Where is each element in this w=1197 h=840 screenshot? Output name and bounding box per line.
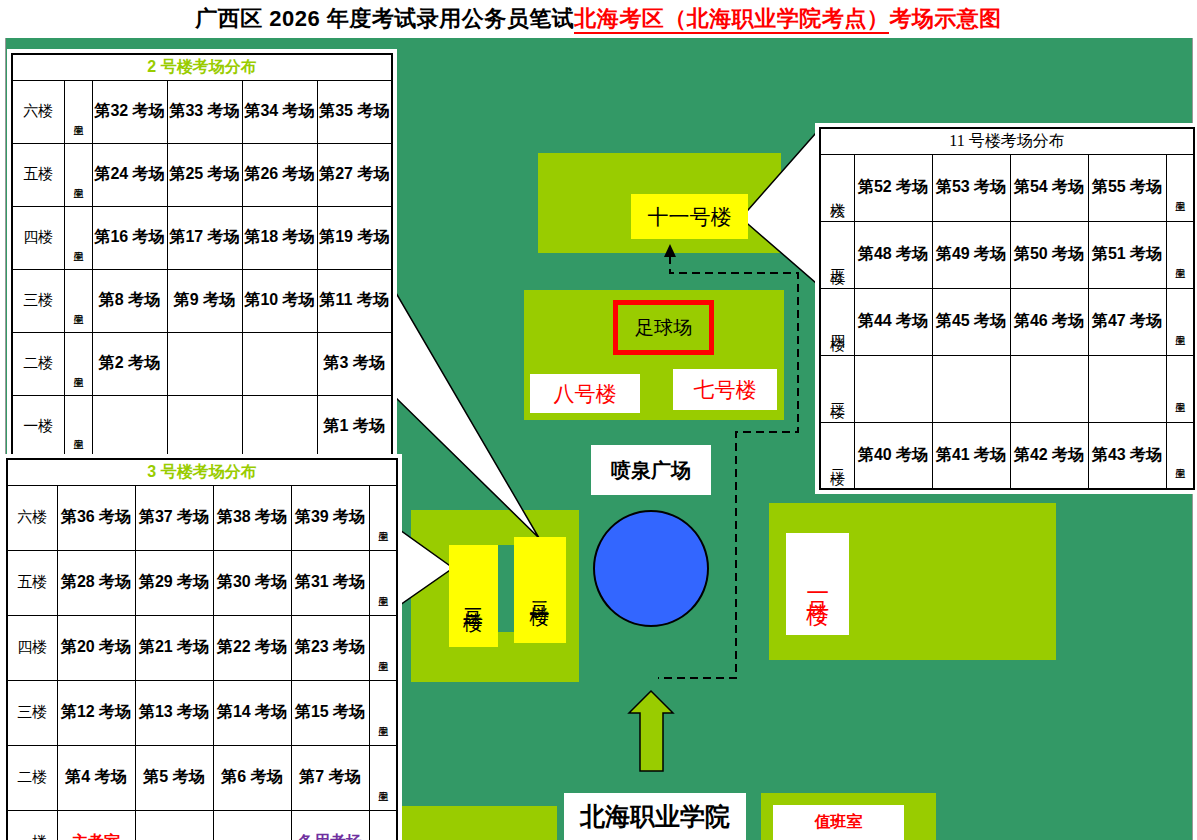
toilet-label: 卫生间 <box>369 680 397 745</box>
floor-label: 二楼 <box>820 422 854 489</box>
room-cell: 第55 考场 <box>1088 154 1166 221</box>
duty-room-label: 值班室 <box>773 805 904 840</box>
room-cell: 第44 考场 <box>854 288 932 355</box>
room-cell: 第6 考场 <box>213 745 291 810</box>
room-cell: 第8 考场 <box>92 269 167 332</box>
room-cell <box>92 395 167 458</box>
room-cell <box>854 355 932 422</box>
room-cell: 第20 考场 <box>57 615 135 680</box>
room-cell: 第21 考场 <box>135 615 213 680</box>
college-name-label: 北海职业学院 <box>564 793 746 840</box>
room-cell <box>1010 355 1088 422</box>
table-row: 四楼第20 考场第21 考场第22 考场第23 考场卫生间 <box>7 615 397 680</box>
toilet-label: 卫生间 <box>369 745 397 810</box>
room-cell: 第48 考场 <box>854 221 932 288</box>
floor-label: 四楼 <box>12 206 64 269</box>
toilet-label: 卫生间 <box>1166 288 1194 355</box>
room-cell: 第22 考场 <box>213 615 291 680</box>
room-cell: 第52 考场 <box>854 154 932 221</box>
table-title: 3 号楼考场分布 <box>7 459 397 485</box>
room-cell: 第3 考场 <box>317 332 392 395</box>
room-cell <box>167 395 242 458</box>
floor-label: 一楼 <box>7 810 57 840</box>
floor-label: 六楼 <box>820 154 854 221</box>
floor-label: 五楼 <box>12 143 64 206</box>
room-cell: 第31 考场 <box>291 550 369 615</box>
floor-label: 三楼 <box>12 269 64 332</box>
entrance-arrow <box>629 691 673 771</box>
room-cell: 第16 考场 <box>92 206 167 269</box>
toilet-label: 卫生间 <box>64 143 92 206</box>
room-cell: 第14 考场 <box>213 680 291 745</box>
floor-label: 一楼 <box>12 395 64 458</box>
room-cell: 第4 考场 <box>57 745 135 810</box>
table-row: 五楼第48 考场第49 考场第50 考场第51 考场卫生间 <box>820 221 1194 288</box>
room-cell: 第13 考场 <box>135 680 213 745</box>
floor-label: 六楼 <box>12 80 64 143</box>
toilet-label: 卫生间 <box>369 550 397 615</box>
room-cell: 第36 考场 <box>57 485 135 550</box>
toilet-label: 卫生间 <box>1166 422 1194 489</box>
room-cell: 第32 考场 <box>92 80 167 143</box>
room-cell: 第54 考场 <box>1010 154 1088 221</box>
room-cell: 第2 考场 <box>92 332 167 395</box>
floor-label: 五楼 <box>820 221 854 288</box>
room-cell: 第50 考场 <box>1010 221 1088 288</box>
toilet-label: 卫生间 <box>1166 154 1194 221</box>
room-cell: 第10 考场 <box>242 269 317 332</box>
room-cell: 第43 考场 <box>1088 422 1166 489</box>
room-cell: 第39 考场 <box>291 485 369 550</box>
room-cell: 第19 考场 <box>317 206 392 269</box>
toilet-label: 卫生间 <box>64 332 92 395</box>
table-row: 三楼卫生间 <box>820 355 1194 422</box>
room-cell: 第47 考场 <box>1088 288 1166 355</box>
toilet-label: 卫生间 <box>1166 355 1194 422</box>
room-cell: 主考室 <box>57 810 135 840</box>
title-exam-area-part: 北海考区（北海职业学院考点） <box>574 6 889 34</box>
table-row: 二楼卫生间第2 考场第3 考场 <box>12 332 392 395</box>
table-row: 六楼卫生间第32 考场第33 考场第34 考场第35 考场 <box>12 80 392 143</box>
room-cell: 第23 考场 <box>291 615 369 680</box>
table-row: 一楼主考室备用考场卫生间 <box>7 810 397 840</box>
building2-label: 二号楼 <box>514 537 566 643</box>
building8-label: 八号楼 <box>530 374 640 413</box>
room-cell: 第1 考场 <box>317 395 392 458</box>
title-black-part: 广西区 2026 年度考试录用公务员笔试 <box>195 6 574 31</box>
room-cell <box>932 355 1010 422</box>
room-cell: 第9 考场 <box>167 269 242 332</box>
room-cell: 第40 考场 <box>854 422 932 489</box>
campus-map: 十一号楼 足球场 八号楼 七号楼 喷泉广场 三号楼 二号楼 一号楼 北海职业学院… <box>5 38 1193 840</box>
building3-label: 三号楼 <box>449 545 498 647</box>
room-cell: 第33 考场 <box>167 80 242 143</box>
toilet-label: 卫生间 <box>64 395 92 458</box>
room-cell: 第41 考场 <box>932 422 1010 489</box>
building3-room-table: 3 号楼考场分布六楼第36 考场第37 考场第38 考场第39 考场卫生间五楼第… <box>6 458 398 840</box>
room-cell <box>242 332 317 395</box>
table-row: 二楼第4 考场第5 考场第6 考场第7 考场卫生间 <box>7 745 397 810</box>
floor-label: 二楼 <box>12 332 64 395</box>
room-cell <box>213 810 291 840</box>
room-cell: 第11 考场 <box>317 269 392 332</box>
building11-label: 十一号楼 <box>631 194 748 239</box>
room-cell: 第7 考场 <box>291 745 369 810</box>
room-cell <box>1088 355 1166 422</box>
floor-label: 五楼 <box>7 550 57 615</box>
room-cell <box>242 395 317 458</box>
table-row: 三楼第12 考场第13 考场第14 考场第15 考场卫生间 <box>7 680 397 745</box>
building1-label: 一号楼 <box>786 533 849 635</box>
room-cell: 第26 考场 <box>242 143 317 206</box>
table-title: 11 号楼考场分布 <box>820 128 1194 154</box>
fountain-square-label: 喷泉广场 <box>591 445 711 495</box>
floor-label: 四楼 <box>7 615 57 680</box>
room-cell: 第24 考场 <box>92 143 167 206</box>
room-cell: 第17 考场 <box>167 206 242 269</box>
toilet-label: 卫生间 <box>369 485 397 550</box>
room-cell <box>167 332 242 395</box>
toilet-label: 卫生间 <box>369 810 397 840</box>
toilet-label: 卫生间 <box>64 80 92 143</box>
table-row: 五楼第28 考场第29 考场第30 考场第31 考场卫生间 <box>7 550 397 615</box>
building2-room-table: 2 号楼考场分布六楼卫生间第32 考场第33 考场第34 考场第35 考场五楼卫… <box>11 53 393 459</box>
room-cell: 第35 考场 <box>317 80 392 143</box>
room-cell: 第49 考场 <box>932 221 1010 288</box>
title-suffix-part: 考场示意图 <box>889 6 1002 31</box>
building2-label-text: 二号楼 <box>529 587 551 593</box>
building7-label: 七号楼 <box>673 369 777 410</box>
floor-label: 六楼 <box>7 485 57 550</box>
room-cell: 第12 考场 <box>57 680 135 745</box>
toilet-label: 卫生间 <box>1166 221 1194 288</box>
floor-label: 三楼 <box>7 680 57 745</box>
table-row: 六楼第52 考场第53 考场第54 考场第55 考场卫生间 <box>820 154 1194 221</box>
table-row: 四楼第44 考场第45 考场第46 考场第47 考场卫生间 <box>820 288 1194 355</box>
toilet-label: 卫生间 <box>64 206 92 269</box>
room-cell: 第25 考场 <box>167 143 242 206</box>
exam-venue-map-page: 广西区 2026 年度考试录用公务员笔试北海考区（北海职业学院考点）考场示意图 … <box>0 0 1197 840</box>
room-cell: 第53 考场 <box>932 154 1010 221</box>
table-row: 五楼卫生间第24 考场第25 考场第26 考场第27 考场 <box>12 143 392 206</box>
room-cell: 第30 考场 <box>213 550 291 615</box>
room-cell: 第45 考场 <box>932 288 1010 355</box>
room-cell: 第51 考场 <box>1088 221 1166 288</box>
table-row: 一楼卫生间第1 考场 <box>12 395 392 458</box>
room-cell: 第38 考场 <box>213 485 291 550</box>
callout-building2-table <box>392 286 539 538</box>
football-field-label: 足球场 <box>613 300 714 355</box>
room-cell: 第29 考场 <box>135 550 213 615</box>
room-cell <box>135 810 213 840</box>
table-row: 三楼卫生间第8 考场第9 考场第10 考场第11 考场 <box>12 269 392 332</box>
room-cell: 第15 考场 <box>291 680 369 745</box>
floor-label: 三楼 <box>820 355 854 422</box>
room-cell: 第18 考场 <box>242 206 317 269</box>
building3-2-gap <box>498 545 514 632</box>
table-row: 四楼卫生间第16 考场第17 考场第18 考场第19 考场 <box>12 206 392 269</box>
room-cell: 备用考场 <box>291 810 369 840</box>
table-title: 2 号楼考场分布 <box>12 54 392 80</box>
table-row: 二楼第40 考场第41 考场第42 考场第43 考场卫生间 <box>820 422 1194 489</box>
toilet-label: 卫生间 <box>369 615 397 680</box>
building3-label-text: 三号楼 <box>463 593 485 599</box>
room-cell: 第34 考场 <box>242 80 317 143</box>
page-title: 广西区 2026 年度考试录用公务员笔试北海考区（北海职业学院考点）考场示意图 <box>0 4 1197 34</box>
fountain-circle <box>593 510 709 627</box>
room-cell: 第42 考场 <box>1010 422 1088 489</box>
south-strip-block <box>398 806 557 840</box>
building1-label-text: 一号楼 <box>805 581 830 587</box>
room-cell: 第46 考场 <box>1010 288 1088 355</box>
toilet-label: 卫生间 <box>64 269 92 332</box>
floor-label: 四楼 <box>820 288 854 355</box>
room-cell: 第37 考场 <box>135 485 213 550</box>
table-row: 六楼第36 考场第37 考场第38 考场第39 考场卫生间 <box>7 485 397 550</box>
building11-room-table: 11 号楼考场分布六楼第52 考场第53 考场第54 考场第55 考场卫生间五楼… <box>819 127 1195 490</box>
room-cell: 第5 考场 <box>135 745 213 810</box>
room-cell: 第27 考场 <box>317 143 392 206</box>
floor-label: 二楼 <box>7 745 57 810</box>
room-cell: 第28 考场 <box>57 550 135 615</box>
